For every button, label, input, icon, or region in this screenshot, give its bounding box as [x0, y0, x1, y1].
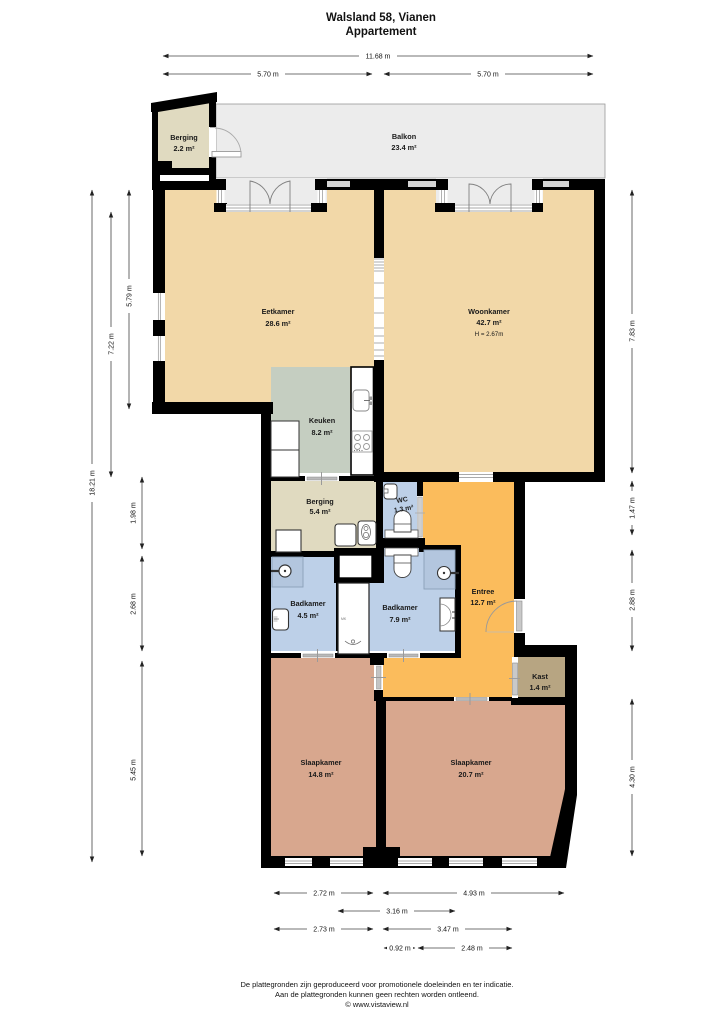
svg-text:4.30 m: 4.30 m	[630, 766, 637, 788]
svg-text:2.72 m: 2.72 m	[313, 891, 335, 898]
svg-text:3.47 m: 3.47 m	[437, 927, 459, 934]
svg-text:5.45 m: 5.45 m	[131, 759, 138, 781]
svg-text:18.21 m: 18.21 m	[90, 470, 97, 495]
svg-text:H = 2.67m: H = 2.67m	[475, 331, 504, 338]
svg-text:4.5 m²: 4.5 m²	[297, 611, 319, 620]
svg-text:Badkamer: Badkamer	[382, 603, 417, 612]
svg-text:Aan de plattegronden kunnen ge: Aan de plattegronden kunnen geen rechten…	[275, 990, 479, 999]
svg-text:2.68 m: 2.68 m	[131, 593, 138, 615]
svg-text:Berging: Berging	[306, 497, 334, 506]
svg-text:3.16 m: 3.16 m	[386, 909, 408, 916]
svg-text:1.4 m²: 1.4 m²	[529, 683, 551, 692]
svg-text:Slaapkamer: Slaapkamer	[451, 758, 492, 767]
svg-text:Woonkamer: Woonkamer	[468, 307, 510, 316]
svg-text:12.7 m²: 12.7 m²	[470, 598, 496, 607]
svg-text:2.48 m: 2.48 m	[461, 946, 483, 953]
svg-text:2.2 m²: 2.2 m²	[173, 144, 195, 153]
svg-text:0.92 m: 0.92 m	[389, 946, 411, 953]
svg-text:MK: MK	[341, 617, 347, 621]
svg-text:1.47 m: 1.47 m	[630, 497, 637, 519]
svg-text:Eetkamer: Eetkamer	[262, 307, 295, 316]
svg-text:Walsland 58, Vianen: Walsland 58, Vianen	[326, 12, 436, 24]
svg-text:Badkamer: Badkamer	[290, 599, 325, 608]
svg-text:2.88 m: 2.88 m	[630, 589, 637, 611]
svg-text:1.98 m: 1.98 m	[131, 502, 138, 524]
svg-text:De plattegronden zijn geproduc: De plattegronden zijn geproduceerd voor …	[240, 980, 513, 989]
svg-text:Appartement: Appartement	[346, 26, 417, 38]
svg-text:20.7 m²: 20.7 m²	[458, 770, 484, 779]
svg-text:2.73 m: 2.73 m	[313, 927, 335, 934]
svg-text:5.70 m: 5.70 m	[257, 72, 279, 79]
svg-text:Keuken: Keuken	[309, 416, 335, 425]
svg-text:5.79 m: 5.79 m	[127, 285, 134, 307]
svg-text:Kast: Kast	[532, 672, 548, 681]
svg-text:28.6 m²: 28.6 m²	[265, 319, 291, 328]
svg-text:7.83 m: 7.83 m	[630, 320, 637, 342]
svg-text:7.22 m: 7.22 m	[109, 333, 116, 355]
svg-text:Entree: Entree	[472, 587, 495, 596]
svg-text:5.4 m²: 5.4 m²	[309, 507, 331, 516]
svg-text:42.7 m²: 42.7 m²	[476, 318, 502, 327]
svg-text:8.2 m²: 8.2 m²	[311, 428, 333, 437]
svg-text:5.70 m: 5.70 m	[477, 72, 499, 79]
svg-text:Slaapkamer: Slaapkamer	[301, 758, 342, 767]
svg-text:11.68 m: 11.68 m	[366, 54, 391, 61]
svg-text:4.93 m: 4.93 m	[463, 891, 485, 898]
svg-text:Berging: Berging	[170, 133, 198, 142]
svg-text:7.9 m²: 7.9 m²	[389, 615, 411, 624]
svg-text:Balkon: Balkon	[392, 132, 416, 141]
svg-text:14.8 m²: 14.8 m²	[308, 770, 334, 779]
svg-text:23.4 m²: 23.4 m²	[391, 143, 417, 152]
svg-text:© www.vistaview.nl: © www.vistaview.nl	[345, 1000, 409, 1009]
